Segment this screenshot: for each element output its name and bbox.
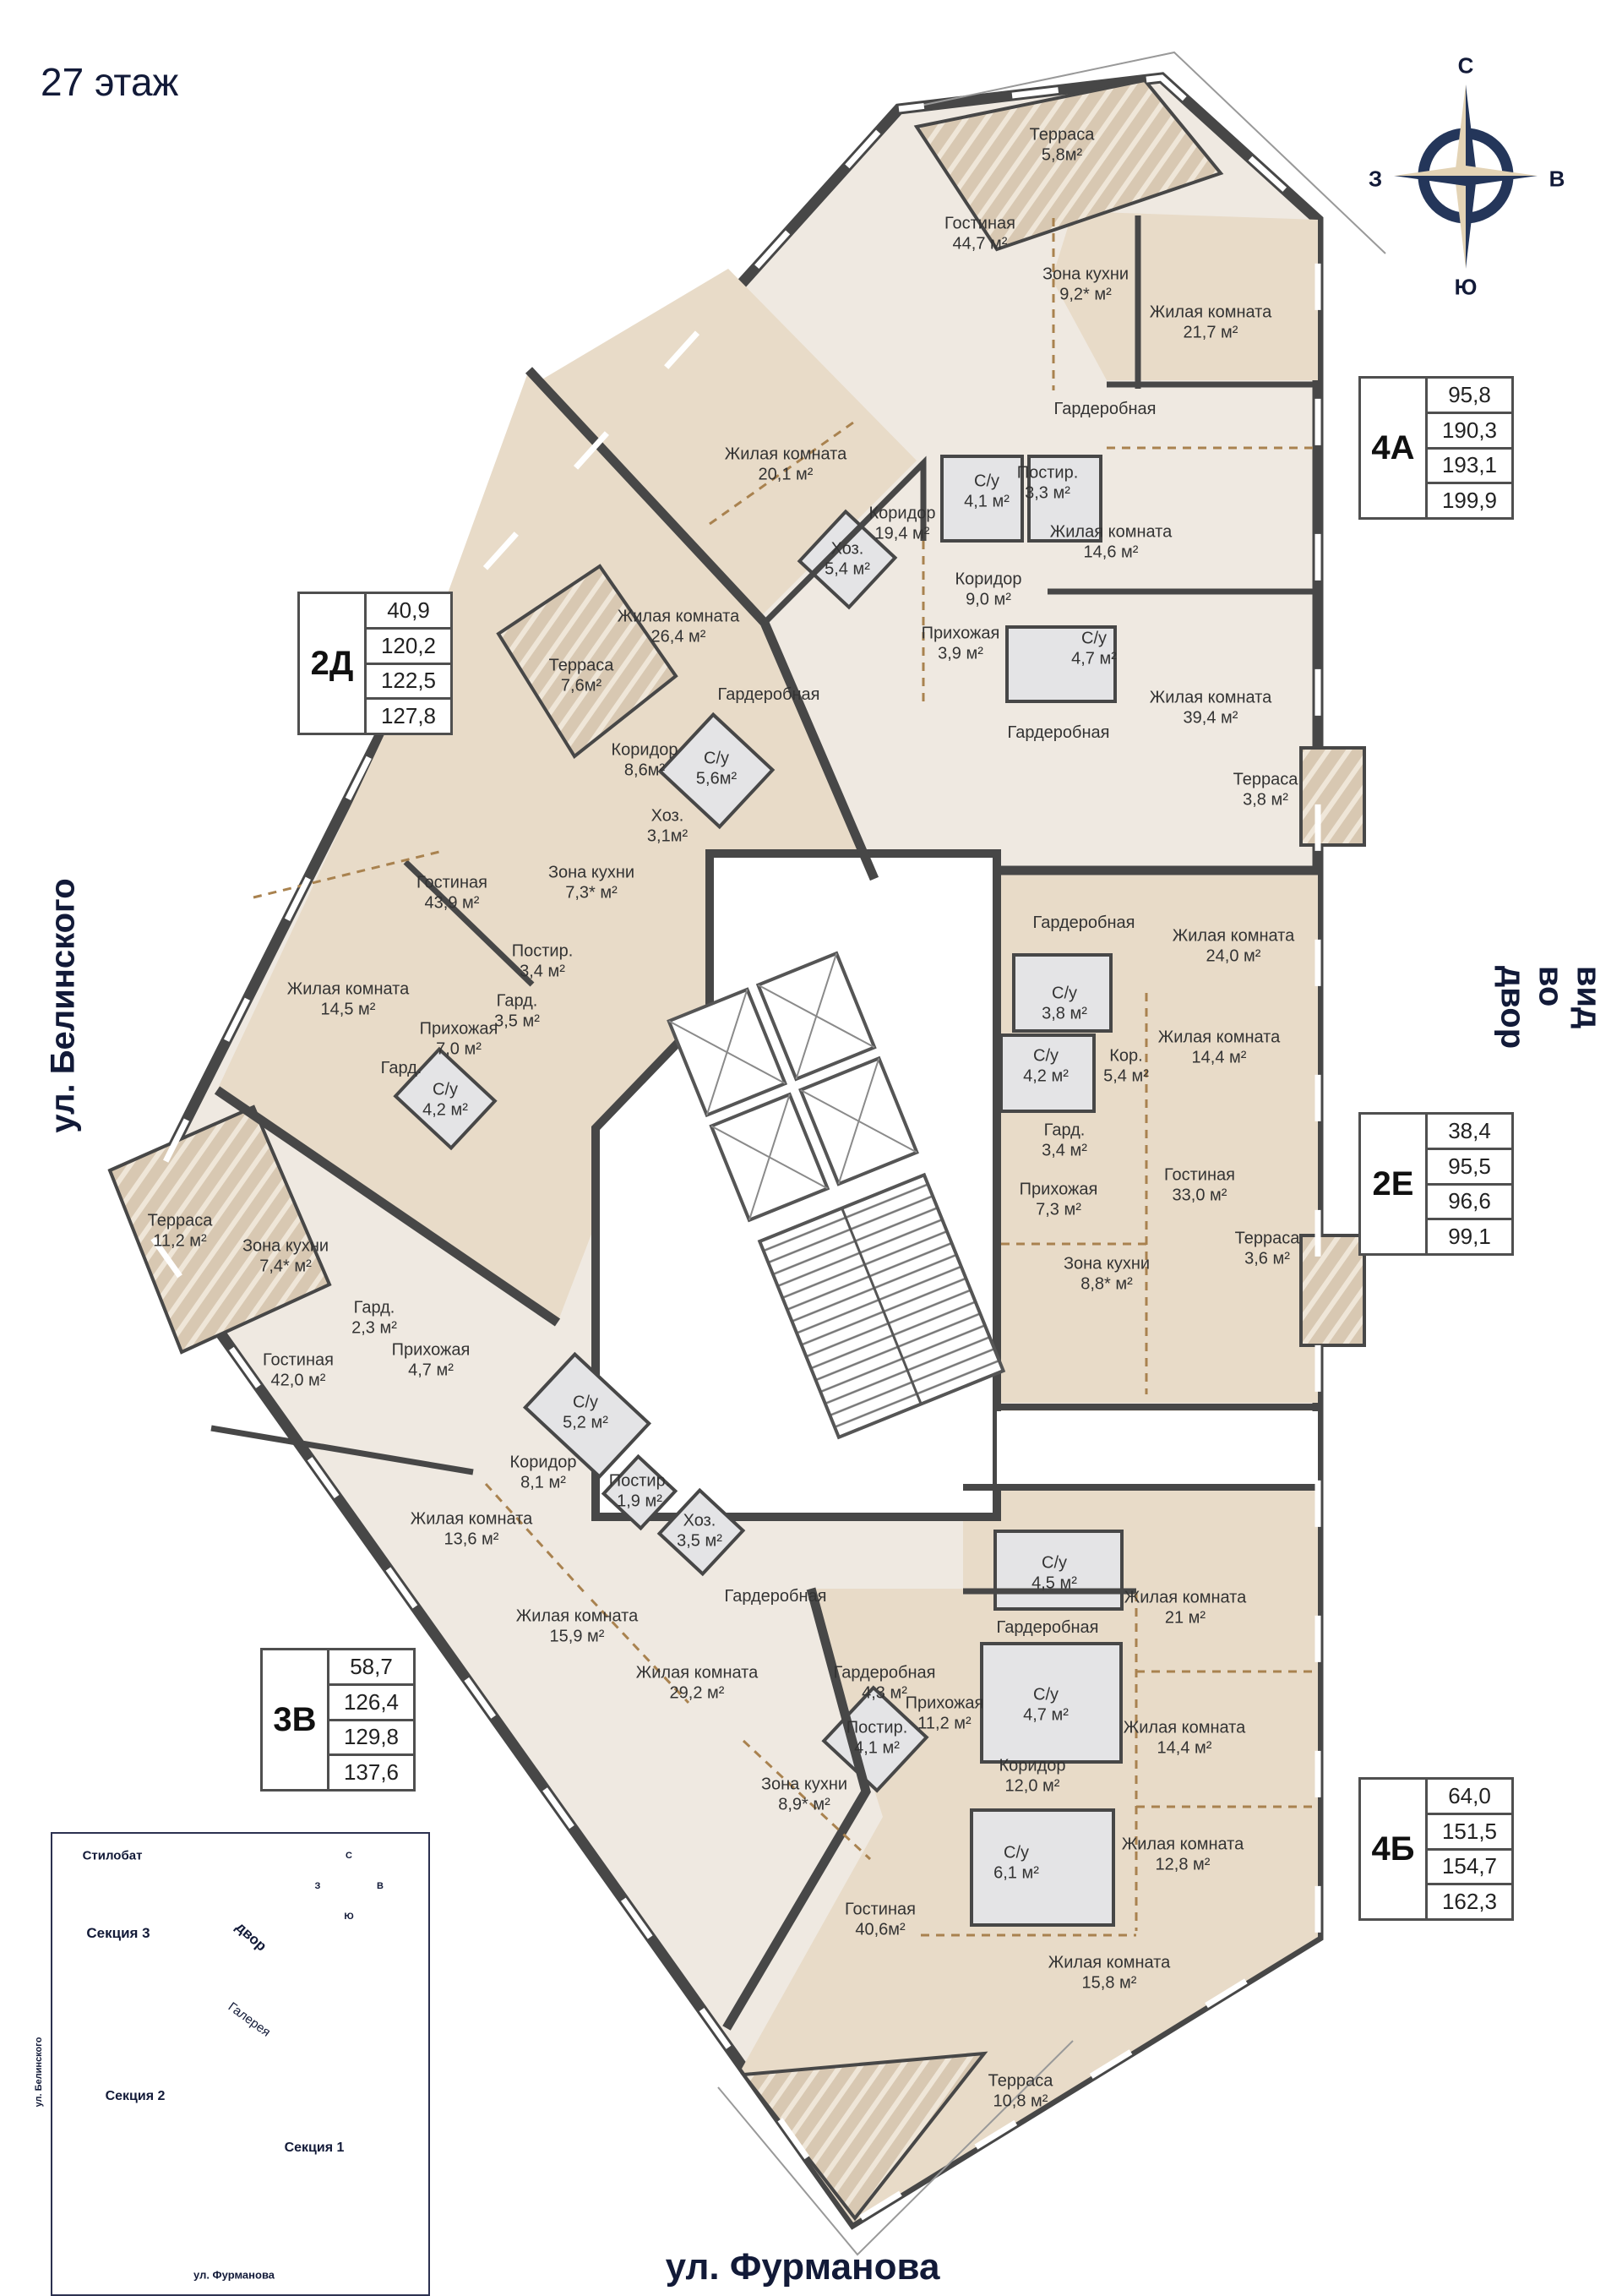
room-label: Гардеробная (997, 1618, 1099, 1639)
unit-area: 122,5 (367, 665, 450, 701)
room-label: Жилая комната14,5 м² (287, 979, 409, 1019)
room-label: Зона кухни8,8* м² (1064, 1254, 1150, 1294)
room-label: Хоз.3,1м² (647, 806, 688, 846)
sitemap-stylobate-label: Стилобат (83, 1849, 143, 1863)
room-label: Хоз.5,4 м² (825, 539, 870, 579)
sitemap-section3-label[interactable]: Секция 3 (86, 1925, 150, 1942)
unit-area: 126,4 (329, 1686, 413, 1721)
room-label: Жилая комната15,8 м² (1048, 1953, 1170, 1993)
room-label: Прихожая7,3 м² (1020, 1180, 1098, 1219)
room-label: Гостиная42,0 м² (263, 1350, 334, 1390)
room-label: Коридор8,1 м² (510, 1453, 577, 1492)
unit-area: 151,5 (1428, 1815, 1511, 1851)
room-label: Зона кухни7,4* м² (242, 1236, 329, 1276)
sitemap-section2-label[interactable]: Секция 2 (106, 2089, 166, 2104)
unit-area: 58,7 (329, 1650, 413, 1686)
room-label: Гардеробная (718, 685, 820, 706)
room-label: Постир.3,3 м² (1017, 463, 1079, 503)
sitemap-street-belinskogo: ул. Белинского (34, 2037, 44, 2108)
room-label: С/у4,1 м² (964, 472, 1010, 511)
corridor-gap (997, 1411, 1318, 1486)
unit-table-2d: 2Д 40,9 120,2 122,5 127,8 (297, 592, 453, 735)
sitemap-compass-south: Ю (344, 1912, 353, 1922)
room-label: Жилая комната15,9 м² (516, 1606, 638, 1646)
room-label: Гардеробная (1033, 913, 1135, 934)
room-label: Коридор8,6м² (612, 740, 678, 780)
room-label: Коридор19,4 м² (869, 504, 936, 543)
sitemap-compass-north: С (346, 1851, 352, 1861)
room-label: С/у6,1 м² (993, 1843, 1039, 1883)
room-label: Жилая комната21,7 м² (1150, 303, 1271, 342)
unit-area: 129,8 (329, 1721, 413, 1757)
room-label: С/у5,6м² (696, 749, 737, 788)
room-label: Жилая комната39,4 м² (1150, 688, 1271, 728)
unit-table-3v: 3В 58,7 126,4 129,8 137,6 (260, 1648, 416, 1792)
room-label: Гардеробная (725, 1587, 827, 1607)
room-label: Терраса7,6м² (549, 656, 614, 695)
room-label: Терраса5,8м² (1030, 125, 1095, 165)
room-label: Жилая комната29,2 м² (636, 1663, 758, 1703)
room-label: Терраса11,2 м² (148, 1211, 213, 1251)
room-label: С/у4,2 м² (422, 1080, 468, 1120)
street-furmanova: ул. Фурманова (666, 2246, 940, 2288)
compass (1394, 85, 1538, 269)
room-label: Терраса3,8 м² (1233, 770, 1298, 810)
room-label: Жилая комната14,4 м² (1124, 1718, 1245, 1758)
room-label: Зона кухни7,3* м² (548, 863, 634, 903)
room-label: Хоз.3,5 м² (677, 1511, 722, 1551)
unit-area: 127,8 (367, 700, 450, 733)
room-label: Гостиная43,9 м² (416, 873, 487, 913)
unit-area: 154,7 (1428, 1851, 1511, 1886)
compass-west: З (1369, 166, 1382, 193)
room-label: Жилая комната14,4 м² (1158, 1028, 1280, 1067)
room-label: Кор.5,4 м² (1103, 1046, 1149, 1086)
room-label: Жилая комната12,8 м² (1122, 1835, 1244, 1874)
room-label: Гостиная44,7 м² (944, 214, 1015, 254)
floor-plan-page: { "page": {"title": "27 этаж"}, "streets… (0, 0, 1622, 2295)
room-label: Гардеробная (1054, 400, 1157, 420)
room-label: С/у4,7 м² (1023, 1685, 1069, 1725)
unit-area: 38,4 (1428, 1115, 1511, 1150)
unit-id: 4А (1361, 379, 1428, 517)
room-label: Гостиная40,6м² (845, 1900, 916, 1939)
room-label: С/у5,2 м² (563, 1393, 608, 1432)
room-label: Прихожая4,7 м² (392, 1340, 471, 1380)
sitemap (51, 1832, 430, 2296)
compass-south: Ю (1455, 275, 1478, 301)
room-label: Жилая комната24,0 м² (1173, 926, 1294, 966)
view-to-yard-label: вид во двор (1494, 966, 1608, 1049)
room-label: Жилая комната21 м² (1124, 1588, 1246, 1628)
room-label: Гард. (381, 1059, 422, 1079)
unit-area: 137,6 (329, 1756, 413, 1789)
room-label: С/у4,2 м² (1023, 1046, 1069, 1086)
room-label: Терраса10,8 м² (988, 2071, 1053, 2111)
room-label: С/у4,5 м² (1031, 1553, 1077, 1593)
room-label: Жилая комната20,1 м² (725, 444, 846, 484)
room-label: Жилая комната26,4 м² (618, 607, 739, 646)
terrace-3-8 (1301, 748, 1364, 845)
room-label: Коридор12,0 м² (999, 1756, 1066, 1796)
sitemap-street-furmanova: ул. Фурманова (193, 2269, 275, 2282)
unit-table-4a: 4А 95,8 190,3 193,1 199,9 (1358, 376, 1514, 520)
unit-area: 96,6 (1428, 1186, 1511, 1221)
compass-north: С (1458, 53, 1474, 79)
room-label: Постир.1,9 м² (609, 1471, 671, 1511)
unit-table-2e: 2Е 38,4 95,5 96,6 99,1 (1358, 1112, 1514, 1256)
unit-area: 193,1 (1428, 450, 1511, 485)
terrace-3-6 (1301, 1235, 1364, 1345)
room-label: Гостиная33,0 м² (1164, 1165, 1235, 1205)
unit-id: 3В (263, 1650, 329, 1789)
room-label: Гардеробная (1008, 723, 1110, 744)
room-label: Прихожая3,9 м² (922, 624, 1000, 663)
street-belinskogo: ул. Белинского (45, 878, 83, 1132)
unit-area: 162,3 (1428, 1885, 1511, 1918)
room-label: Прихожая7,0 м² (420, 1019, 498, 1059)
unit-area: 40,9 (367, 594, 450, 630)
room-label: Терраса3,6 м² (1235, 1229, 1300, 1268)
room-label: Зона кухни8,9* м² (761, 1775, 847, 1814)
room-label: Постир.3,4 м² (512, 941, 574, 981)
unit-area: 95,8 (1428, 379, 1511, 414)
room-label: Зона кухни9,2* м² (1042, 265, 1129, 304)
room-label: Гард.2,3 м² (351, 1298, 397, 1338)
unit-id: 4Б (1361, 1780, 1428, 1918)
room-label: Гард.3,5 м² (494, 991, 540, 1031)
compass-east: В (1549, 166, 1565, 193)
unit-area: 199,9 (1428, 484, 1511, 517)
sitemap-section1-label[interactable]: Секция 1 (285, 2141, 345, 2156)
room-label: Гард.3,4 м² (1042, 1121, 1087, 1160)
room-label: Прихожая11,2 м² (906, 1693, 984, 1733)
room-label: С/у4,7 м² (1071, 629, 1117, 668)
sitemap-compass-east: В (377, 1881, 384, 1891)
room-label: С/у3,8 м² (1042, 984, 1087, 1023)
room-label: Жилая комната14,6 м² (1050, 522, 1172, 562)
room-label: Постир.4,1 м² (846, 1718, 908, 1758)
floor-title: 27 этаж (41, 59, 178, 105)
sitemap-compass-west: З (315, 1881, 321, 1891)
room-label: Жилая комната13,6 м² (411, 1509, 532, 1549)
unit-id: 2Д (300, 594, 367, 733)
room-label: Коридор9,0 м² (955, 570, 1022, 609)
unit-id: 2Е (1361, 1115, 1428, 1253)
unit-area: 120,2 (367, 630, 450, 665)
unit-area: 64,0 (1428, 1780, 1511, 1815)
unit-area: 95,5 (1428, 1150, 1511, 1186)
unit-table-4b: 4Б 64,0 151,5 154,7 162,3 (1358, 1777, 1514, 1921)
unit-area: 190,3 (1428, 414, 1511, 450)
unit-area: 99,1 (1428, 1220, 1511, 1253)
